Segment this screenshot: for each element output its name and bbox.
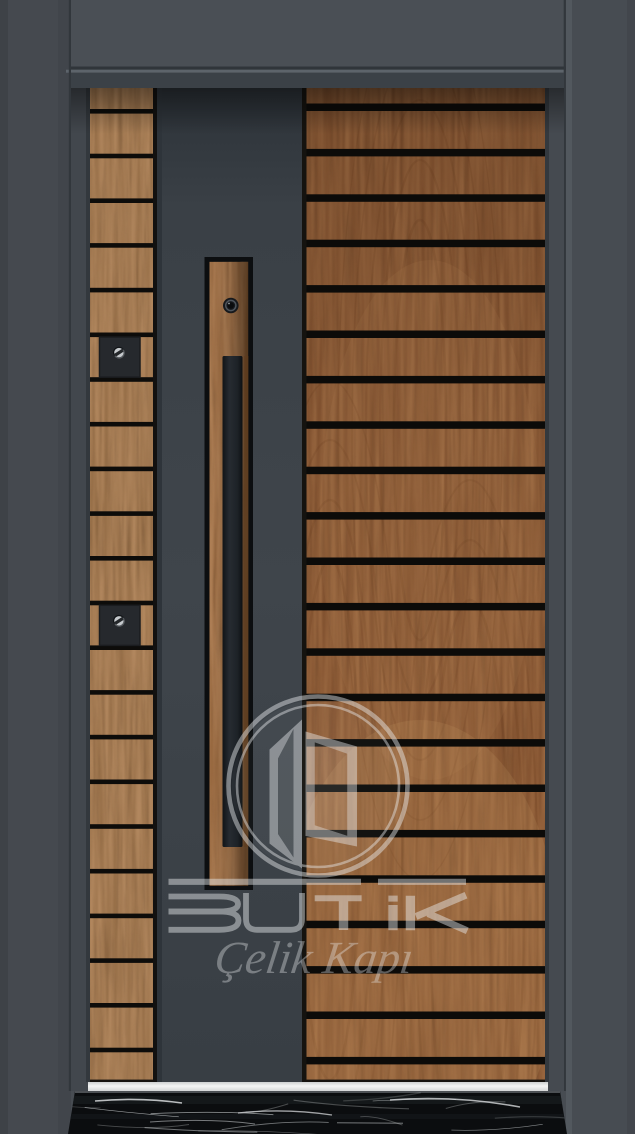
svg-text:Çelik Kapı: Çelik Kapı (212, 932, 417, 983)
